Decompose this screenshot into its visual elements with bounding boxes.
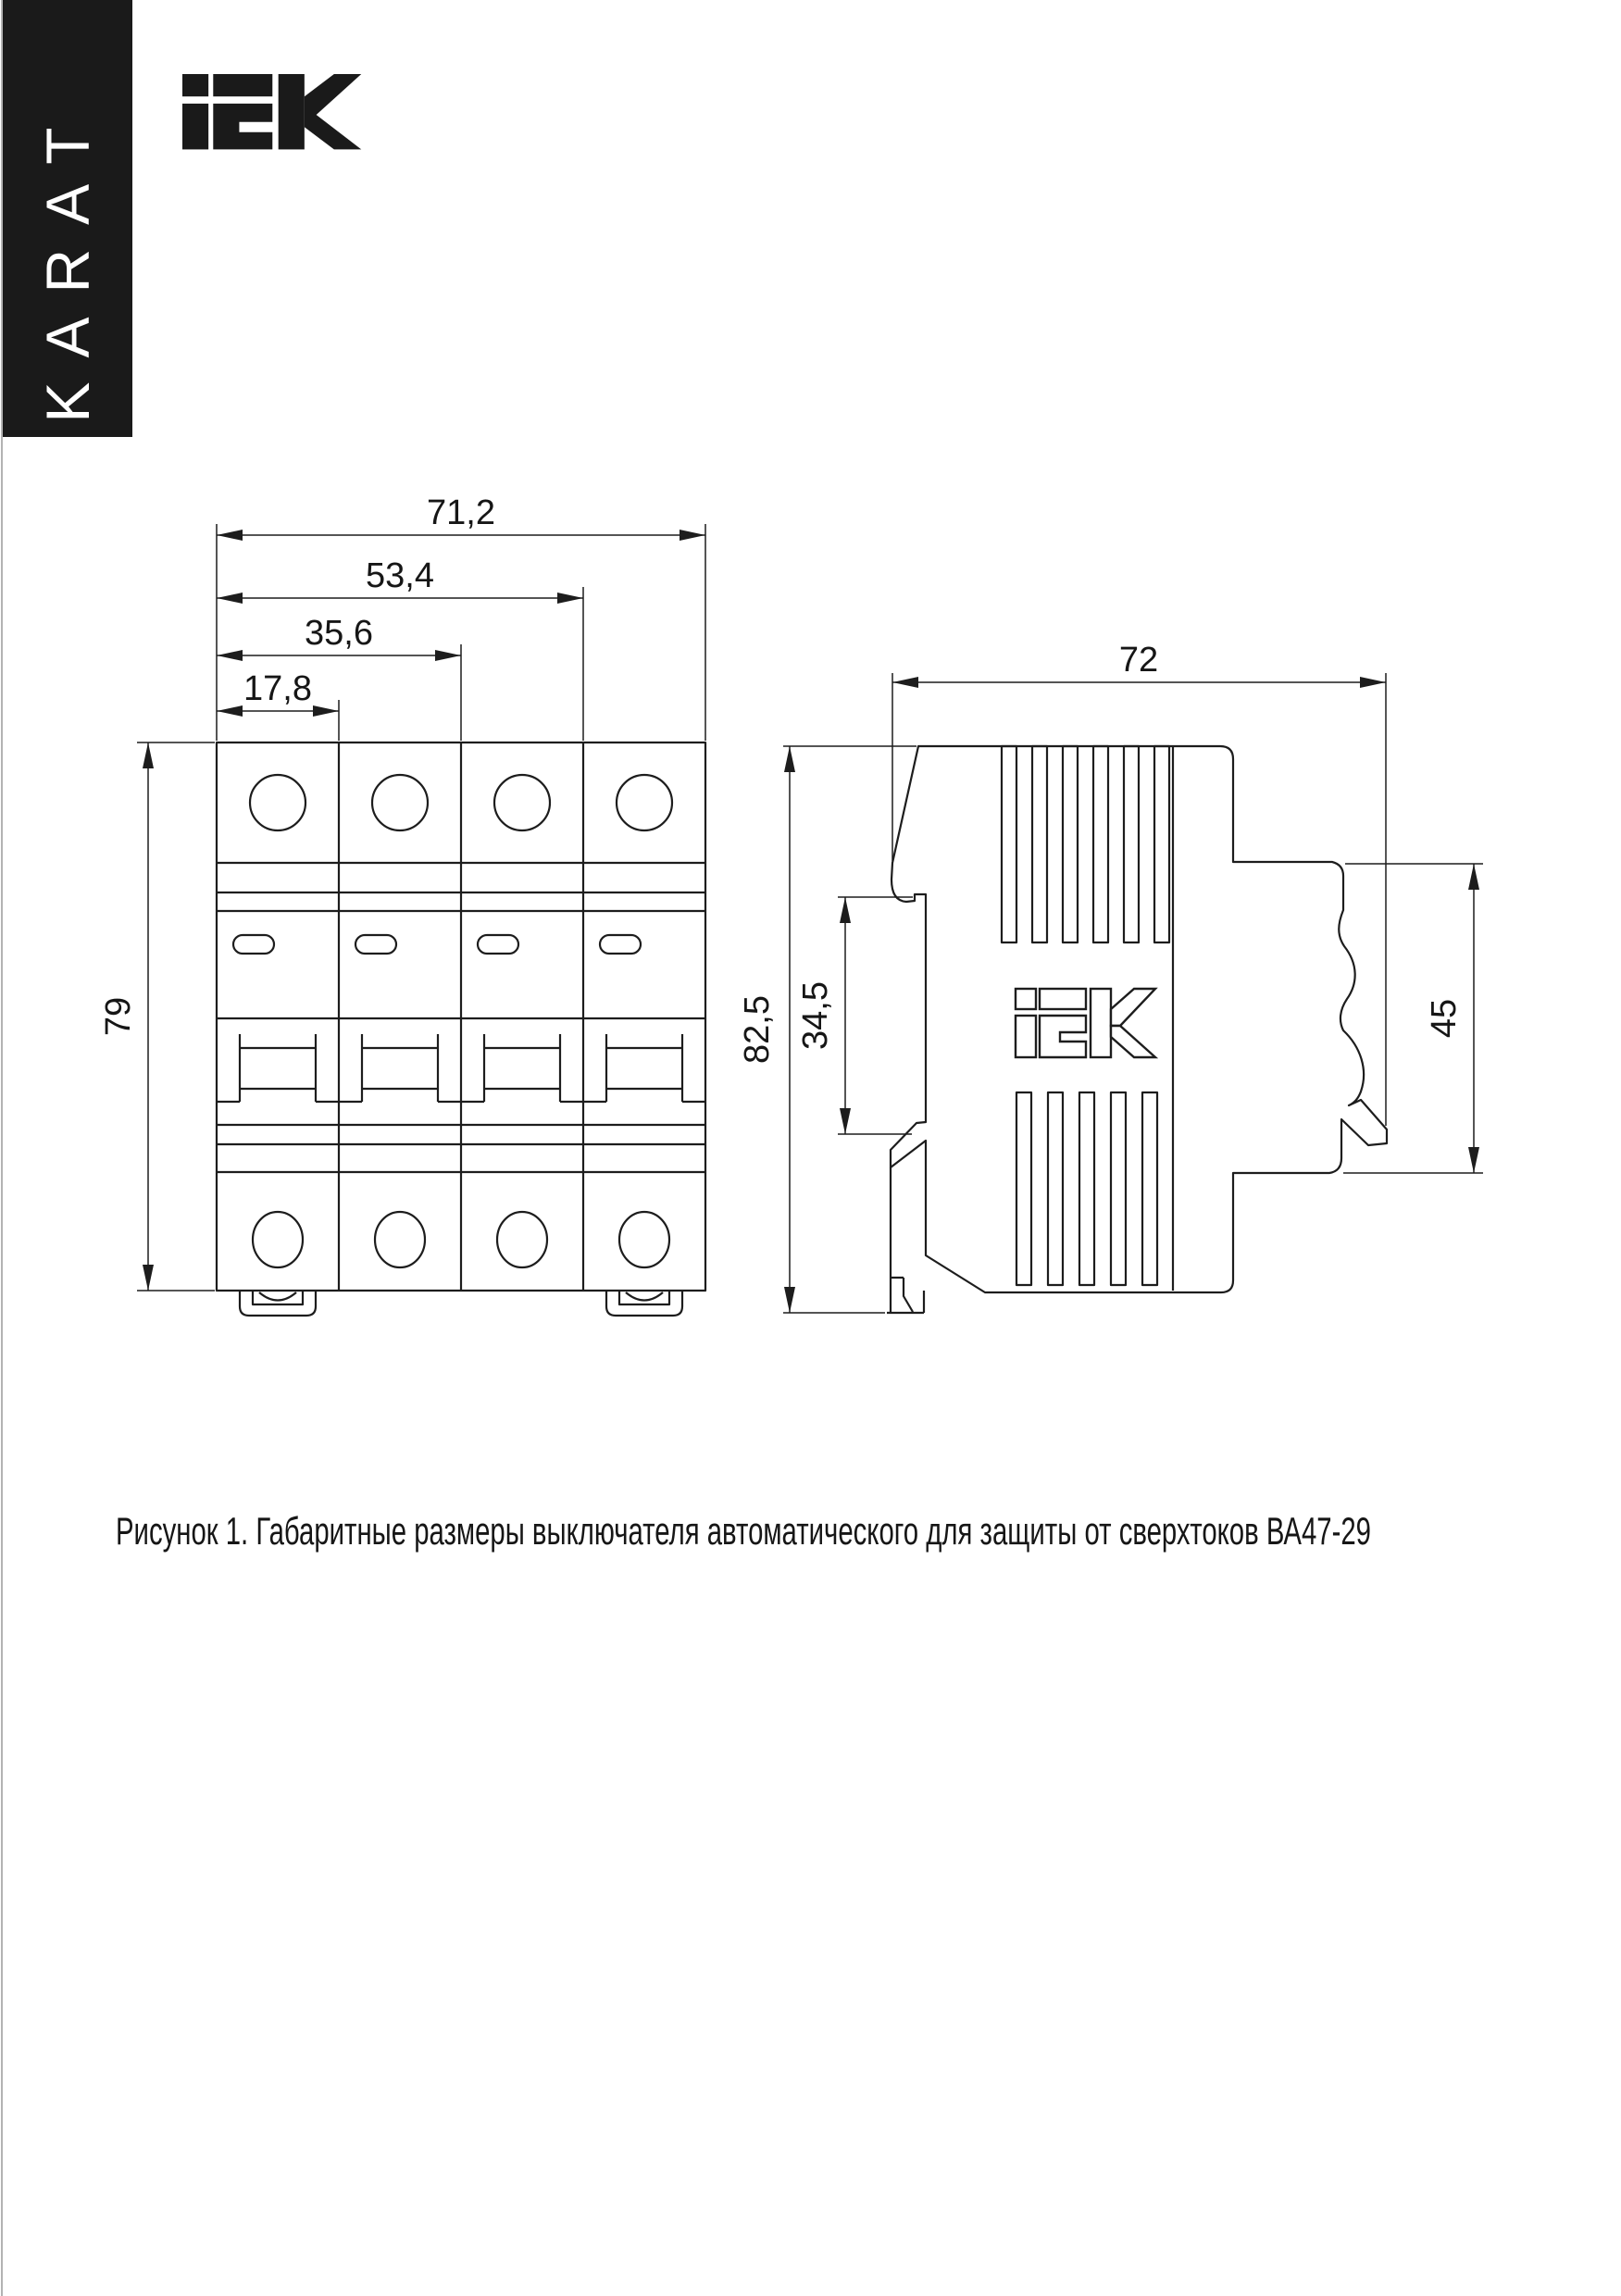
dim-label-17-8: 17,8 bbox=[243, 669, 312, 708]
iek-logo bbox=[182, 74, 361, 149]
figure-caption: Рисунок 1. Габаритные размеры выключател… bbox=[116, 1509, 1371, 1553]
dim-label-71-2: 71,2 bbox=[427, 493, 495, 532]
dim-label-82-5: 82,5 bbox=[738, 995, 777, 1064]
catalog-page: KARAT bbox=[0, 0, 1621, 2296]
din-rail-clips bbox=[240, 1291, 682, 1316]
front-view-drawing bbox=[217, 742, 705, 1316]
label-windows bbox=[233, 935, 641, 954]
figure-canvas: KARAT bbox=[0, 0, 1621, 2296]
iek-logo-embossed bbox=[1016, 989, 1155, 1057]
dim-label-79: 79 bbox=[99, 997, 138, 1036]
dim-label-72: 72 bbox=[1119, 641, 1158, 680]
dim-label-34-5: 34,5 bbox=[796, 981, 835, 1050]
dim-label-45: 45 bbox=[1425, 999, 1464, 1038]
side-view-drawing bbox=[887, 746, 1387, 1313]
upper-vent-slots bbox=[1002, 746, 1169, 942]
lower-vent-slots bbox=[1016, 1092, 1157, 1285]
dim-label-53-4: 53,4 bbox=[366, 556, 434, 595]
dim-label-35-6: 35,6 bbox=[305, 614, 373, 653]
module-dividers bbox=[339, 742, 583, 1291]
karat-banner-label: KARAT bbox=[33, 103, 102, 422]
karat-banner: KARAT bbox=[3, 0, 132, 437]
din-clip-slider bbox=[887, 1167, 924, 1313]
